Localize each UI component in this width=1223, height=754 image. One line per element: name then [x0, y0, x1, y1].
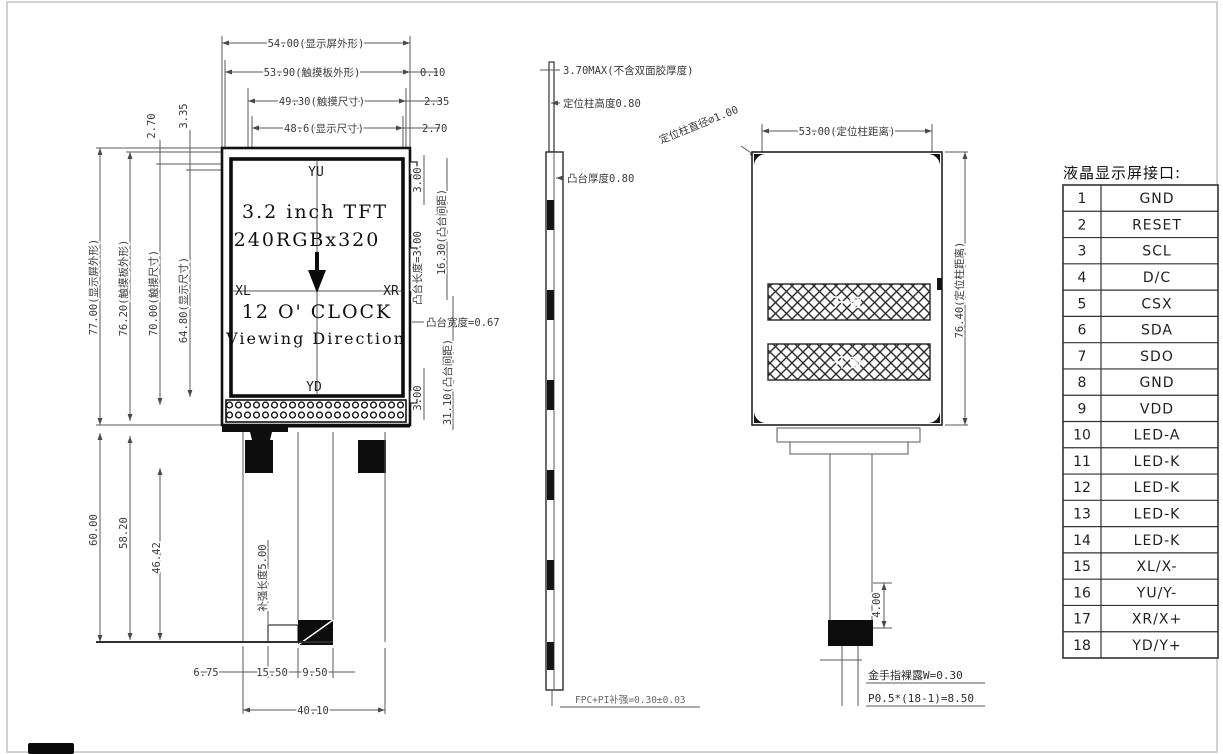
back-tail-outline — [777, 428, 920, 620]
window-label-2: 开窗 — [833, 355, 865, 371]
screen-viewing-text: Viewing Direction — [225, 329, 406, 348]
side-view: 3.70MAX(不含双面胶厚度) 定位柱高度0.80 凸台厚度0.80 FPC+… — [540, 62, 700, 707]
pin-name: XL/X- — [1136, 559, 1177, 575]
dim-675: 6.75 — [193, 667, 218, 679]
dir-left-label: XL — [235, 284, 251, 299]
pin-number: 8 — [1078, 375, 1087, 391]
pin-number: 5 — [1078, 296, 1087, 312]
label-pitch: P0.5*(18-1)=8.50 — [868, 692, 974, 705]
pad-left — [245, 440, 273, 473]
corner-logo-mark — [28, 743, 74, 754]
pin-name: GND — [1139, 191, 1174, 207]
pin-number: 3 — [1078, 244, 1087, 260]
dim-offset-010: 0.10 — [420, 67, 445, 79]
dir-bottom-label: YD — [306, 380, 322, 395]
pin-name: LED-K — [1134, 533, 1181, 549]
screen-clock-text: 12 O' CLOCK — [242, 301, 393, 323]
dim-post-distance-h: 53.00(定位柱距离) — [799, 125, 896, 138]
pad-right — [358, 440, 386, 473]
dim-6000: 60.00 — [88, 514, 100, 546]
pin-number: 13 — [1073, 506, 1091, 522]
pin-number: 6 — [1078, 323, 1087, 339]
dim-950: 9.50 — [302, 667, 327, 679]
dim-tail-400: 4.00 — [871, 592, 883, 617]
lcd-spec-drawing-page: 54.00(显示屏外形) 53.90(触摸板外形) 0.10 49.30(触摸尺… — [0, 0, 1223, 754]
label-fpc-stiffener: FPC+PI补强=0.30±0.03 — [575, 694, 686, 706]
pin-name: GND — [1139, 375, 1174, 391]
dim-gap-335: 3.35 — [178, 103, 190, 128]
pin-number: 14 — [1073, 533, 1091, 549]
pin-number: 17 — [1073, 612, 1091, 628]
pin-number: 1 — [1078, 191, 1087, 207]
pin-number: 12 — [1073, 480, 1091, 496]
pin-name: CSX — [1141, 296, 1172, 312]
pad-neck-left — [250, 432, 272, 440]
pin-number: 9 — [1078, 401, 1087, 417]
pin-name: LED-K — [1134, 454, 1181, 470]
gold-finger-block — [828, 620, 873, 646]
dim-stiffener-length: 补强长度5.00 — [256, 544, 269, 611]
pin-number: 15 — [1073, 559, 1091, 575]
dim-4642: 46.42 — [151, 542, 163, 574]
pin-number: 16 — [1073, 585, 1091, 601]
pin-name: D/C — [1143, 270, 1171, 286]
dim-gap-270: 2.70 — [146, 113, 158, 138]
dim-display-area-h: 64.80(显示尺寸) — [177, 257, 190, 343]
front-view: 54.00(显示屏外形) 53.90(触摸板外形) 0.10 49.30(触摸尺… — [88, 36, 500, 717]
pin-name: YU/Y- — [1136, 585, 1177, 601]
side-top-glass — [549, 62, 554, 152]
dim-1550: 15.50 — [256, 667, 288, 679]
pin-number: 7 — [1078, 349, 1087, 365]
dim-offset-270: 2.70 — [422, 123, 447, 135]
dim-display-area-w: 48.6(显示尺寸) — [284, 122, 364, 135]
dim-touch-panel-w: 53.90(触摸板外形) — [264, 66, 361, 79]
bonding-bar-right — [288, 424, 410, 428]
dim-boss-gap-1630: 16.30(凸台间距) — [435, 189, 448, 275]
dim-4010: 40.10 — [297, 705, 329, 717]
pin-name: XR/X+ — [1132, 612, 1182, 628]
front-bottom-dim-lines — [192, 646, 385, 714]
label-thickness-max: 3.70MAX(不含双面胶厚度) — [563, 64, 693, 77]
pin-name: SDA — [1141, 323, 1173, 339]
dim-display-outline-h: 77.00(显示屏外形) — [88, 239, 100, 336]
dim-boss-gap-3110: 31.10(凸台间距) — [441, 339, 454, 425]
stiffener-block — [268, 625, 298, 642]
screen-size-text: 3.2 inch TFT — [242, 201, 388, 223]
pin-number: 2 — [1078, 217, 1087, 233]
label-post-diameter: 定位柱直径⌀1.00 — [657, 103, 740, 147]
pin-name: RESET — [1132, 217, 1182, 233]
dim-touch-panel-h: 76.20(触摸板外形) — [117, 240, 130, 337]
dim-boss-width: 凸台宽度=0.67 — [426, 316, 500, 329]
screen-resolution-text: 240RGBx320 — [234, 229, 381, 251]
dim-boss-top-300: 3.00 — [412, 167, 424, 192]
label-gold-finger: 金手指裸露W=0.30 — [868, 668, 963, 682]
window-label-1: 开窗 — [833, 295, 865, 311]
drawing-canvas: 54.00(显示屏外形) 53.90(触摸板外形) 0.10 49.30(触摸尺… — [0, 0, 1223, 754]
pin-number: 18 — [1073, 638, 1091, 654]
label-boss-thickness: 凸台厚度0.80 — [567, 172, 634, 185]
pin-name: SDO — [1140, 349, 1174, 365]
bonding-strip — [226, 400, 406, 422]
pin-name: SCL — [1142, 244, 1171, 260]
pin-number: 10 — [1073, 428, 1091, 444]
back-view: 53.00(定位柱距离) 76.40(定位柱距离) 定位柱直径⌀1.00 开窗 … — [657, 103, 985, 706]
dim-post-distance-v: 76.40(定位柱距离) — [953, 242, 966, 339]
pin-name: VDD — [1140, 401, 1174, 417]
dim-touch-area-h: 70.00(触摸尺寸) — [147, 250, 160, 336]
label-post-height: 定位柱高度0.80 — [563, 97, 641, 110]
pin-table: 液晶显示屏接口: 1GND2RESET3SCL4D/C5CSX6SDA7SDO8… — [1063, 164, 1218, 658]
dim-5820: 58.20 — [118, 517, 130, 549]
pin-table-title: 液晶显示屏接口: — [1063, 164, 1181, 182]
pin-number: 4 — [1078, 270, 1087, 286]
bonding-bar-left — [222, 424, 288, 432]
pin-number: 11 — [1073, 454, 1091, 470]
pin-name: LED-A — [1134, 428, 1181, 444]
dir-top-label: YU — [308, 165, 324, 180]
dim-display-outline-w: 54.00(显示屏外形) — [268, 38, 365, 50]
pin-name: LED-K — [1134, 506, 1181, 522]
dim-offset-235: 2.35 — [424, 96, 449, 108]
pin-name: LED-K — [1134, 480, 1181, 496]
dim-boss-bottom-300: 3.00 — [412, 385, 424, 410]
dir-right-label: XR — [383, 284, 399, 299]
pin-name: YD/Y+ — [1131, 638, 1181, 654]
dim-touch-area-w: 49.30(触摸尺寸) — [279, 95, 365, 108]
dim-boss-length: 凸台长度=3.00 — [411, 231, 424, 305]
